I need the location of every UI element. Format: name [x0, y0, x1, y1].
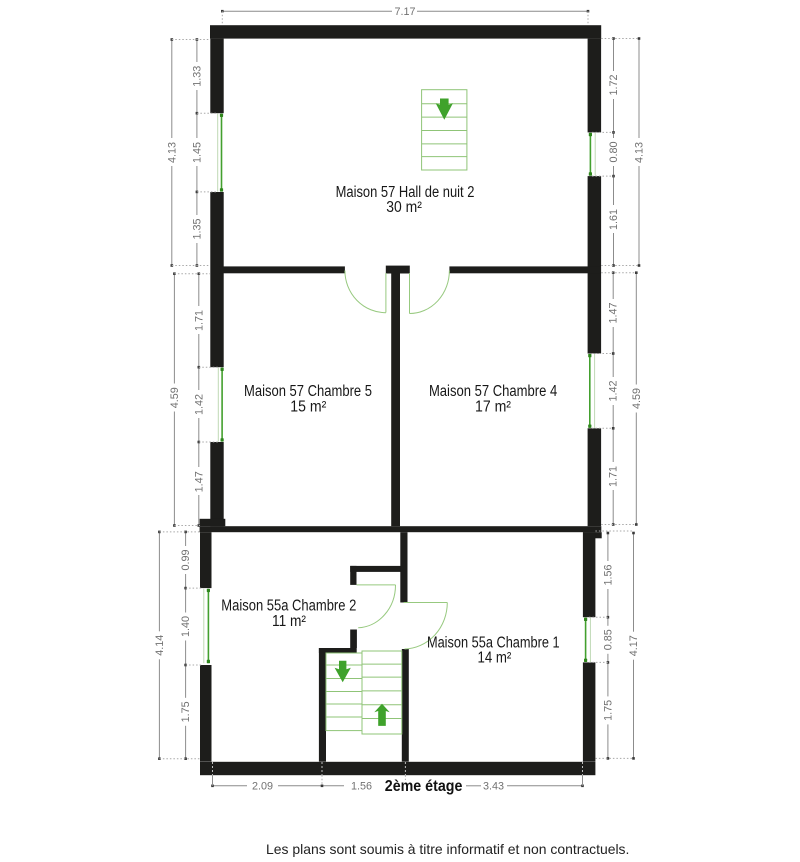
svg-text:17 m²: 17 m²	[475, 398, 511, 415]
svg-text:4.59: 4.59	[169, 387, 181, 408]
svg-text:4.13: 4.13	[166, 142, 178, 163]
svg-text:1.40: 1.40	[180, 616, 192, 637]
svg-text:0.80: 0.80	[608, 141, 620, 162]
svg-text:1.42: 1.42	[193, 394, 205, 415]
svg-text:7.17: 7.17	[394, 6, 415, 18]
svg-text:1.33: 1.33	[191, 66, 203, 87]
svg-text:15 m²: 15 m²	[290, 398, 326, 415]
svg-text:1.47: 1.47	[193, 471, 205, 492]
svg-text:0.99: 0.99	[180, 549, 192, 570]
svg-text:4.14: 4.14	[154, 635, 166, 656]
svg-text:1.42: 1.42	[608, 380, 620, 401]
svg-text:4.13: 4.13	[634, 142, 646, 163]
svg-text:4.17: 4.17	[628, 635, 640, 656]
svg-text:1.71: 1.71	[608, 466, 620, 487]
svg-text:1.61: 1.61	[608, 209, 620, 230]
svg-text:1.71: 1.71	[193, 310, 205, 331]
svg-text:1.47: 1.47	[608, 302, 620, 323]
svg-text:2ème étage: 2ème étage	[385, 778, 463, 795]
svg-text:1.56: 1.56	[351, 780, 372, 792]
svg-text:11 m²: 11 m²	[272, 613, 306, 630]
svg-text:14 m²: 14 m²	[478, 649, 512, 666]
svg-text:1.56: 1.56	[602, 564, 614, 585]
svg-text:1.35: 1.35	[191, 218, 203, 239]
svg-text:1.75: 1.75	[180, 701, 192, 722]
svg-text:4.59: 4.59	[631, 388, 643, 409]
svg-text:2.09: 2.09	[252, 780, 273, 792]
svg-text:0.85: 0.85	[602, 629, 614, 650]
svg-text:1.72: 1.72	[608, 74, 620, 95]
svg-text:3.43: 3.43	[483, 780, 504, 792]
svg-text:1.45: 1.45	[191, 142, 203, 163]
svg-text:Les plans sont soumis à titre: Les plans sont soumis à titre informatif…	[266, 841, 629, 857]
svg-text:1.75: 1.75	[602, 700, 614, 721]
svg-text:30 m²: 30 m²	[386, 199, 422, 216]
